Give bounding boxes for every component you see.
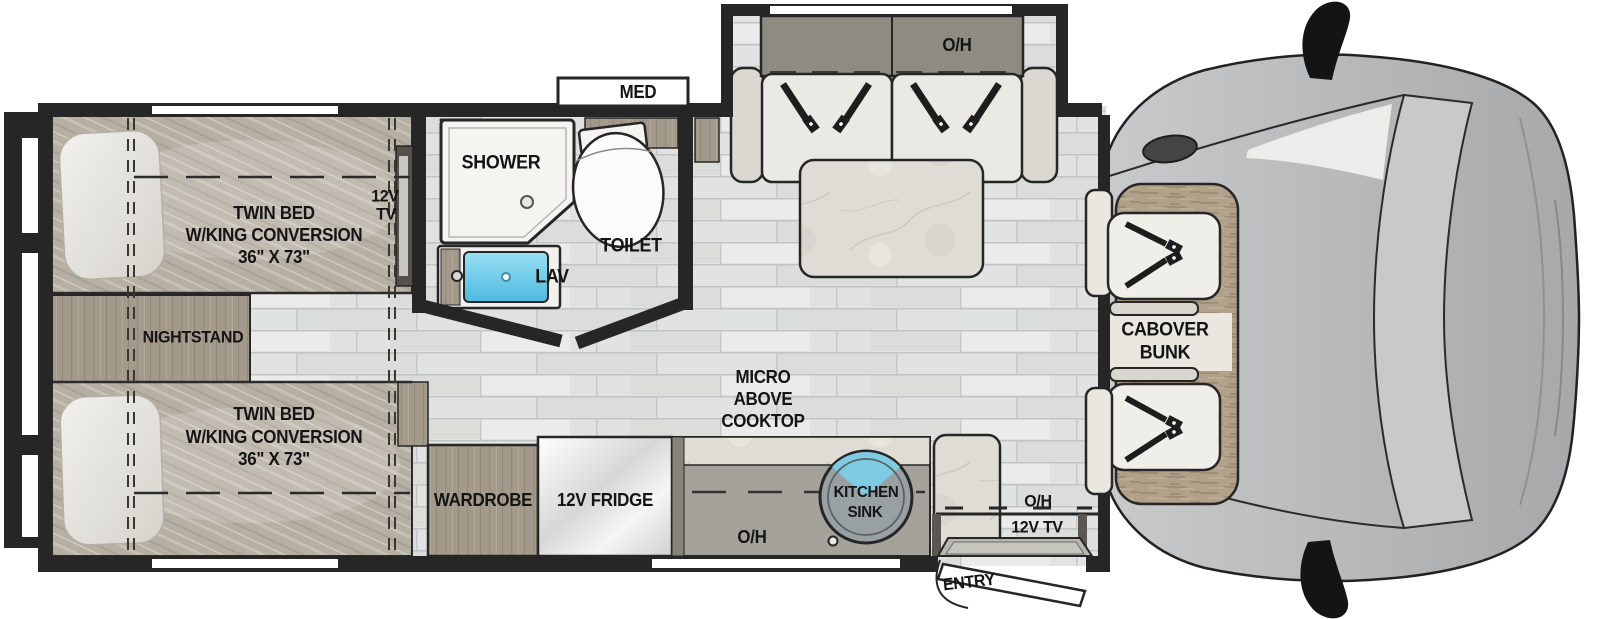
label-shower: SHOWER bbox=[462, 154, 541, 173]
label-bed2: 36" X 73" bbox=[238, 450, 310, 468]
rear-bumper bbox=[4, 112, 22, 548]
label-bed2: TWIN BED bbox=[233, 405, 314, 423]
label-kitchen-sink: KITCHEN bbox=[834, 485, 899, 501]
label-bedroom-tv: TV bbox=[376, 206, 396, 223]
label-sofa-oh: O/H bbox=[942, 36, 971, 54]
lav-drain-icon bbox=[502, 273, 510, 281]
label-lav: LAV bbox=[535, 268, 569, 287]
window bbox=[152, 106, 338, 114]
label-bed1: TWIN BED bbox=[233, 204, 314, 222]
label-med: MED bbox=[620, 83, 657, 101]
label-bedroom-tv: 12V bbox=[371, 188, 399, 205]
label-toilet: TOILET bbox=[600, 237, 661, 256]
pillow-2 bbox=[59, 394, 164, 545]
label-cabover: BUNK bbox=[1140, 344, 1190, 363]
label-bed2: W/KING CONVERSION bbox=[186, 428, 363, 446]
sink-faucet-icon bbox=[829, 537, 838, 546]
window bbox=[152, 559, 338, 568]
label-wardrobe: WARDROBE bbox=[434, 491, 532, 509]
label-nightstand: NIGHTSTAND bbox=[143, 329, 244, 346]
label-bed1: W/KING CONVERSION bbox=[186, 226, 363, 244]
label-fridge: 12V FRIDGE bbox=[557, 491, 653, 509]
label-bed1: 36" X 73" bbox=[238, 248, 310, 266]
label-cabover: CABOVER bbox=[1121, 321, 1208, 340]
label-entry-oh: O/H bbox=[1024, 493, 1052, 510]
sofa-armrest-left bbox=[731, 68, 763, 182]
label-micro: COOKTOP bbox=[721, 412, 804, 430]
label-kitchen-sink: SINK bbox=[848, 505, 883, 521]
sofa-table bbox=[800, 160, 983, 277]
shower-drain-icon bbox=[521, 196, 533, 208]
pillow-1 bbox=[58, 129, 166, 280]
window bbox=[652, 559, 900, 568]
sofa-armrest-right bbox=[1021, 68, 1057, 182]
label-micro: MICRO bbox=[736, 368, 791, 386]
label-entry-tv: 12V TV bbox=[1011, 519, 1063, 536]
label-counter-oh: O/H bbox=[737, 528, 766, 546]
rv-floorplan: MED SHOWER TOILET LAV 12V TV TWIN BED W/… bbox=[0, 0, 1600, 619]
label-micro: ABOVE bbox=[734, 390, 793, 408]
lav-faucet-icon bbox=[452, 271, 462, 281]
floorplan-drawing bbox=[0, 0, 1600, 619]
peninsula-counter bbox=[934, 435, 1000, 552]
window bbox=[770, 6, 1012, 14]
